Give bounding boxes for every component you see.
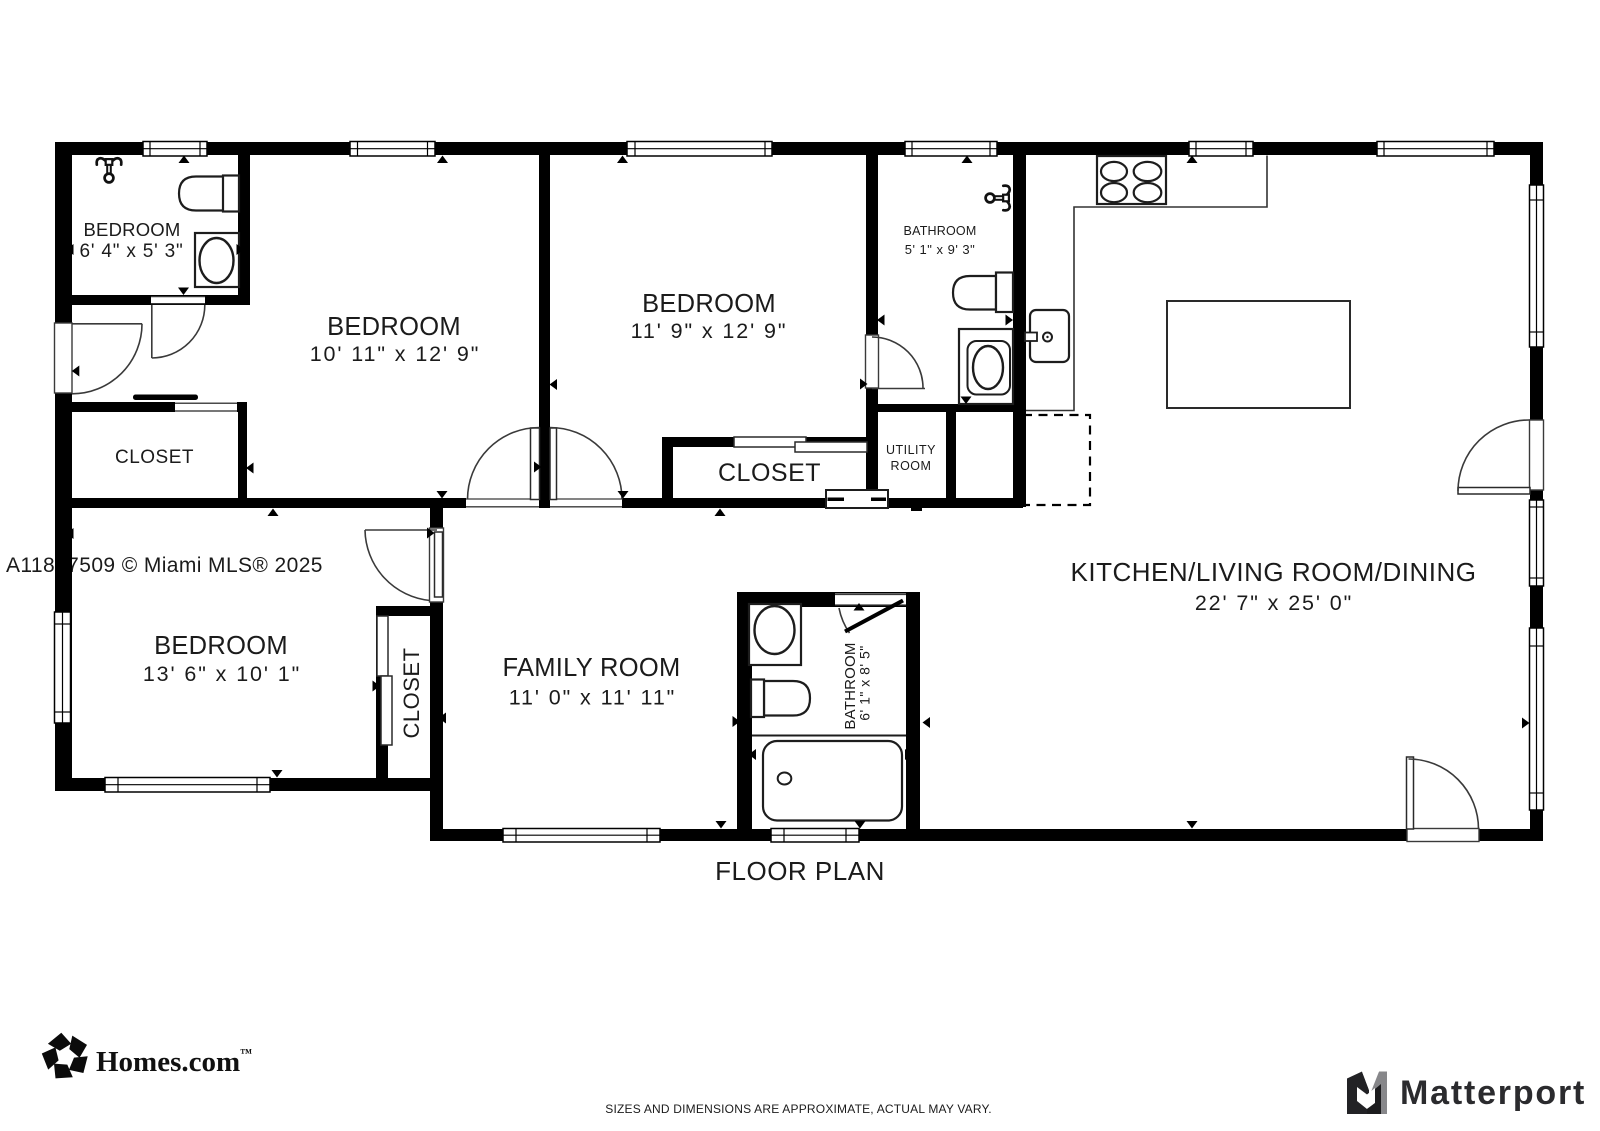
svg-text:11' 9" x 12' 9": 11' 9" x 12' 9" [631, 319, 788, 343]
svg-text:BEDROOM: BEDROOM [154, 632, 288, 660]
svg-text:SIZES AND DIMENSIONS ARE APPRO: SIZES AND DIMENSIONS ARE APPROXIMATE, AC… [605, 1102, 991, 1116]
svg-text:FLOOR PLAN: FLOOR PLAN [715, 856, 885, 886]
svg-text:22' 7" x 25' 0": 22' 7" x 25' 0" [1195, 591, 1353, 615]
svg-text:CLOSET: CLOSET [718, 459, 821, 487]
svg-text:Homes.com™: Homes.com™ [96, 1046, 252, 1078]
svg-text:5' 1" x 9' 3": 5' 1" x 9' 3" [905, 242, 976, 257]
svg-text:13' 6" x 10' 1": 13' 6" x 10' 1" [143, 662, 301, 686]
svg-text:BEDROOM: BEDROOM [84, 219, 181, 240]
svg-text:BEDROOM: BEDROOM [642, 290, 776, 318]
svg-text:CLOSET: CLOSET [115, 447, 194, 468]
svg-text:KITCHEN/LIVING ROOM/DINING: KITCHEN/LIVING ROOM/DINING [1071, 557, 1477, 587]
svg-text:6' 4" x 5' 3": 6' 4" x 5' 3" [79, 241, 183, 262]
svg-text:UTILITY: UTILITY [886, 443, 936, 457]
svg-text:CLOSET: CLOSET [399, 647, 424, 738]
svg-text:6' 1" x 8' 5": 6' 1" x 8' 5" [857, 645, 873, 721]
svg-text:BATHROOM: BATHROOM [904, 224, 977, 238]
svg-text:Matterport: Matterport [1400, 1074, 1586, 1112]
svg-text:FAMILY ROOM: FAMILY ROOM [502, 654, 680, 682]
svg-text:10' 11" x 12' 9": 10' 11" x 12' 9" [310, 342, 481, 366]
svg-text:A11817509 © Miami MLS® 2025: A11817509 © Miami MLS® 2025 [6, 554, 323, 577]
svg-text:11' 0" x 11' 11": 11' 0" x 11' 11" [509, 686, 676, 710]
svg-text:ROOM: ROOM [891, 459, 932, 473]
svg-text:BEDROOM: BEDROOM [327, 313, 461, 341]
